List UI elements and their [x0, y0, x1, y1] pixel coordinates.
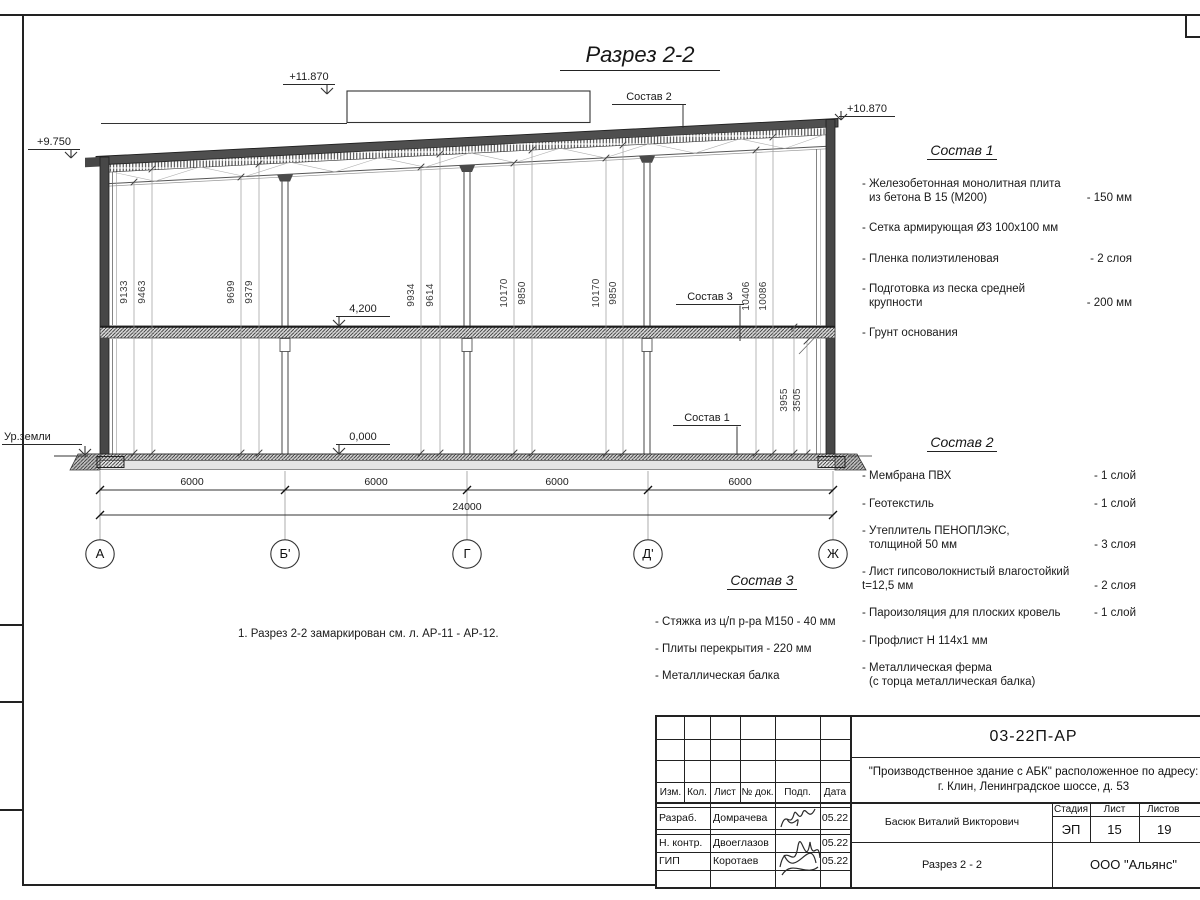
signature-icon: [775, 831, 822, 885]
row-date: 05.22: [820, 834, 850, 852]
list-item: - Подготовка из песка средней крупности-…: [862, 283, 1132, 310]
signature-icon: [777, 805, 819, 832]
row-role: Н. контр.: [659, 834, 709, 852]
list-item: - Лист гипсоволокнистый влагостойкий t=1…: [862, 566, 1136, 593]
doc-number: 03-22П-АР: [852, 717, 1200, 757]
list-item: - Сетка армирующая Ø3 100x100 мм: [862, 222, 1132, 236]
sheet-note: 1. Разрез 2-2 замаркирован см. л. АР-11 …: [238, 628, 499, 640]
roof-edge-left: [85, 157, 100, 167]
elevation-arrow-icon: [78, 445, 92, 456]
vdim-10170a: 10170: [499, 263, 513, 323]
right-foundation: [818, 457, 845, 468]
approver-name: Басюк Виталий Викторович: [852, 802, 1052, 842]
vdim-9699: 9699: [226, 262, 240, 322]
elevation-arrow-icon: [64, 148, 78, 159]
elevation-0000: 0,000: [336, 431, 390, 445]
list-item: - Стяжка из ц/п р-ра М150 - 40 мм: [655, 616, 865, 630]
axis-bubble-b: Б': [270, 546, 300, 561]
company-name: ООО "Альянс": [1052, 842, 1200, 887]
vdim-9934: 9934: [406, 265, 420, 325]
row-name: Двоеглазов: [713, 834, 773, 852]
col-kol: Кол.: [684, 782, 710, 802]
roof-superstructure: [101, 91, 590, 124]
callout-sostav2: Состав 2: [612, 91, 686, 105]
right-wall: [826, 120, 835, 455]
left-foundation: [97, 457, 124, 468]
axis-bubble-zh: Ж: [818, 546, 848, 561]
left-wall: [100, 157, 109, 455]
drawing-title: Разрез 2-2: [560, 42, 720, 71]
vdim-9850b: 9850: [608, 263, 622, 323]
elevation-arrow-icon: [834, 110, 848, 121]
vdim-9463: 9463: [137, 262, 151, 322]
vdim-10406: 10406: [741, 266, 755, 326]
drawing-sheet: { "sheet": { "title": "Разрез 2-2", "not…: [0, 0, 1200, 900]
col-izm: Изм.: [657, 782, 684, 802]
list-item: - Профлист Н 114х1 мм: [862, 635, 1136, 649]
col-podp: Подп.: [775, 782, 820, 802]
composition-1-heading: Состав 1: [920, 142, 1004, 158]
vdim-9133: 9133: [119, 262, 133, 322]
col-data: Дата: [820, 782, 850, 802]
list-item: - Пленка полиэтиленовая- 2 слоя: [862, 253, 1132, 267]
sheet-label: Лист: [1090, 802, 1139, 816]
list-item: - Металлическая ферма (с торца металличе…: [862, 662, 1136, 689]
span-dim-4: 6000: [710, 476, 770, 488]
vdim-3505: 3505: [792, 370, 806, 430]
vdim-3955: 3955: [779, 370, 793, 430]
list-item: - Плиты перекрытия - 220 мм: [655, 643, 865, 657]
elevation-arrow-icon: [332, 316, 346, 327]
row-date: 05.22: [820, 807, 850, 829]
elevation-arrow-icon: [320, 84, 334, 95]
total-dim: 24000: [437, 501, 497, 513]
sheets-label: Листов: [1139, 802, 1200, 816]
callout-sostav3: Состав 3: [676, 291, 744, 305]
span-dim-1: 6000: [162, 476, 222, 488]
list-item: - Грунт основания: [862, 327, 1132, 341]
composition-3-list: - Стяжка из ц/п р-ра М150 - 40 мм - Плит…: [655, 616, 865, 697]
composition-2-list: - Мембрана ПВХ- 1 слой - Геотекстиль- 1 …: [862, 470, 1136, 703]
callout-sostav1: Состав 1: [673, 412, 741, 426]
sheet-value: 15: [1090, 816, 1139, 842]
callout-leaders: [683, 105, 740, 456]
title-block: 03-22П-АР "Производственное здание с АБК…: [655, 715, 1200, 889]
row-date: 05.22: [820, 852, 850, 870]
list-item: - Железобетонная монолитная плита из бет…: [862, 178, 1132, 205]
stage-label: Стадия: [1052, 802, 1090, 816]
vdim-10086: 10086: [758, 266, 772, 326]
col-doc: № док.: [740, 782, 775, 802]
elevation-11870: +11.870: [283, 71, 335, 85]
drawing-title-cell: Разрез 2 - 2: [852, 842, 1052, 887]
row-name: Коротаев: [713, 852, 773, 870]
vdim-9379: 9379: [244, 262, 258, 322]
vdim-10170b: 10170: [591, 263, 605, 323]
sheets-value: 19: [1139, 816, 1200, 842]
list-item: - Металлическая балка: [655, 670, 865, 684]
project-name: "Производственное здание с АБК" располож…: [852, 757, 1200, 802]
row-role: ГИП: [659, 852, 709, 870]
row-name: Домрачева: [713, 807, 773, 829]
span-dim-2: 6000: [346, 476, 406, 488]
vdim-9614: 9614: [425, 265, 439, 325]
col-list: Лист: [710, 782, 740, 802]
elevation-4200: 4,200: [336, 303, 390, 317]
roof-band: [96, 119, 838, 187]
list-item: - Геотекстиль- 1 слой: [862, 498, 1136, 512]
composition-1-list: - Железобетонная монолитная плита из бет…: [862, 178, 1132, 358]
ground-level-label: Ур.земли: [2, 431, 82, 445]
walls: [85, 120, 835, 456]
composition-3-heading: Состав 3: [720, 572, 804, 588]
stage-value: ЭП: [1052, 816, 1090, 842]
vdim-9850a: 9850: [517, 263, 531, 323]
row-role: Разраб.: [659, 807, 709, 829]
elevation-arrow-icon: [332, 444, 346, 455]
ground-slab: [54, 454, 872, 470]
axis-bubble-a: А: [85, 546, 115, 561]
composition-2-heading: Состав 2: [920, 434, 1004, 450]
list-item: - Утеплитель ПЕНОПЛЭКС, толщиной 50 мм- …: [862, 525, 1136, 552]
list-item: - Мембрана ПВХ- 1 слой: [862, 470, 1136, 484]
span-dim-3: 6000: [527, 476, 587, 488]
axis-bubble-g: Г: [452, 546, 482, 561]
list-item: - Пароизоляция для плоских кровель- 1 сл…: [862, 607, 1136, 621]
margin-cell-divider-3: [0, 809, 23, 811]
axis-bubble-d: Д': [633, 546, 663, 561]
